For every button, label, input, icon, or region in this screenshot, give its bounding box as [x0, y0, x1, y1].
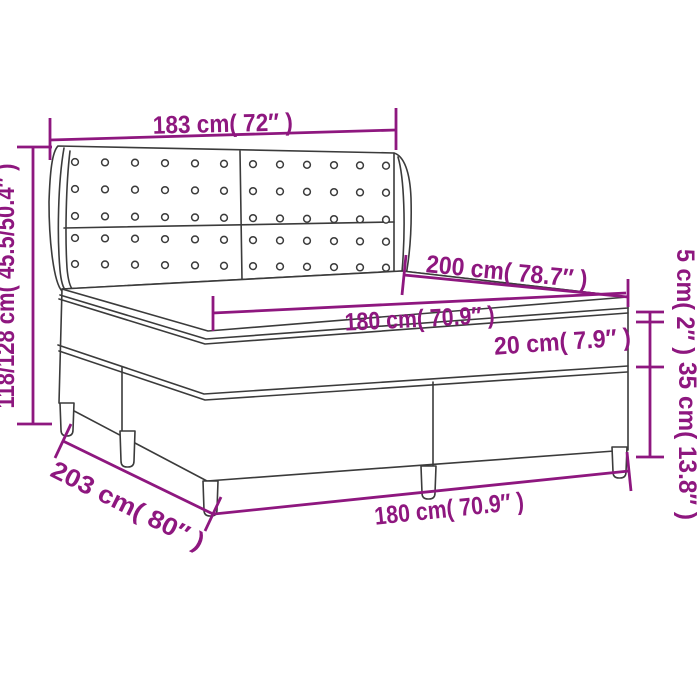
headboard-button — [132, 213, 139, 220]
headboard-button — [331, 216, 338, 223]
dim-overall-height — [17, 147, 52, 424]
leg-mid-left — [120, 431, 135, 467]
headboard-button — [331, 264, 338, 271]
headboard-button — [331, 189, 338, 196]
headboard-button — [221, 187, 228, 194]
bed-diagram-canvas: 183 cm( 72″ ) 118/128 cm( 45.5/50.4″ ) 2… — [0, 0, 700, 700]
headboard-button — [304, 161, 311, 168]
headboard-button — [221, 236, 228, 243]
headboard-button — [304, 263, 311, 270]
headboard-button — [192, 262, 199, 269]
headboard-button — [221, 160, 228, 167]
headboard-button — [192, 187, 199, 194]
headboard-button — [357, 238, 364, 245]
headboard-button — [162, 214, 169, 221]
headboard-button — [304, 237, 311, 244]
headboard-button — [132, 235, 139, 242]
headboard-button — [192, 160, 199, 167]
headboard-button — [102, 261, 109, 268]
headboard-button — [72, 186, 79, 193]
headboard-button — [72, 159, 79, 166]
label-headboard-width: 183 cm( 72″ ) — [152, 108, 293, 139]
headboard-button — [383, 189, 390, 196]
headboard-button — [250, 237, 257, 244]
headboard-button — [221, 262, 228, 269]
headboard-button — [192, 236, 199, 243]
headboard-button — [357, 216, 364, 223]
dim-right-heights — [636, 312, 664, 457]
headboard-button — [383, 216, 390, 223]
headboard-button — [357, 189, 364, 196]
headboard-button — [250, 263, 257, 270]
headboard-button — [277, 215, 284, 222]
headboard-button — [277, 263, 284, 270]
headboard-button — [383, 264, 390, 271]
headboard-button — [357, 264, 364, 271]
leg-front-center — [421, 466, 436, 499]
headboard-button — [331, 238, 338, 245]
headboard-button — [383, 162, 390, 169]
headboard-button — [250, 215, 257, 222]
headboard-button — [277, 161, 284, 168]
headboard-button — [162, 160, 169, 167]
headboard-button — [162, 262, 169, 269]
headboard-button — [221, 214, 228, 221]
label-base-length: 203 cm( 80″ ) — [46, 456, 209, 556]
headboard-button — [72, 261, 79, 268]
headboard-button — [102, 159, 109, 166]
headboard-button — [72, 213, 79, 220]
dimension-diagram: 183 cm( 72″ ) 118/128 cm( 45.5/50.4″ ) 2… — [0, 0, 700, 700]
headboard-button — [277, 237, 284, 244]
label-topper-height: 5 cm( 2″ ) — [671, 249, 699, 355]
headboard-button — [304, 215, 311, 222]
headboard-button — [250, 188, 257, 195]
headboard-button — [277, 188, 284, 195]
headboard-button — [102, 235, 109, 242]
headboard-button — [383, 238, 390, 245]
headboard-button — [132, 159, 139, 166]
headboard-button — [132, 186, 139, 193]
dim-base-width-tick-right — [627, 452, 631, 491]
headboard-button — [72, 235, 79, 242]
headboard-button — [192, 214, 199, 221]
headboard-button — [162, 236, 169, 243]
label-overall-height: 118/128 cm( 45.5/50.4″ ) — [0, 164, 20, 409]
headboard-button — [102, 213, 109, 220]
headboard-button — [102, 186, 109, 193]
headboard-button — [250, 161, 257, 168]
headboard-button — [304, 188, 311, 195]
label-base-height: 35 cm( 13.8″ ) — [673, 362, 700, 520]
headboard-button — [162, 187, 169, 194]
headboard-button — [357, 162, 364, 169]
headboard-button — [331, 162, 338, 169]
headboard-button — [132, 261, 139, 268]
